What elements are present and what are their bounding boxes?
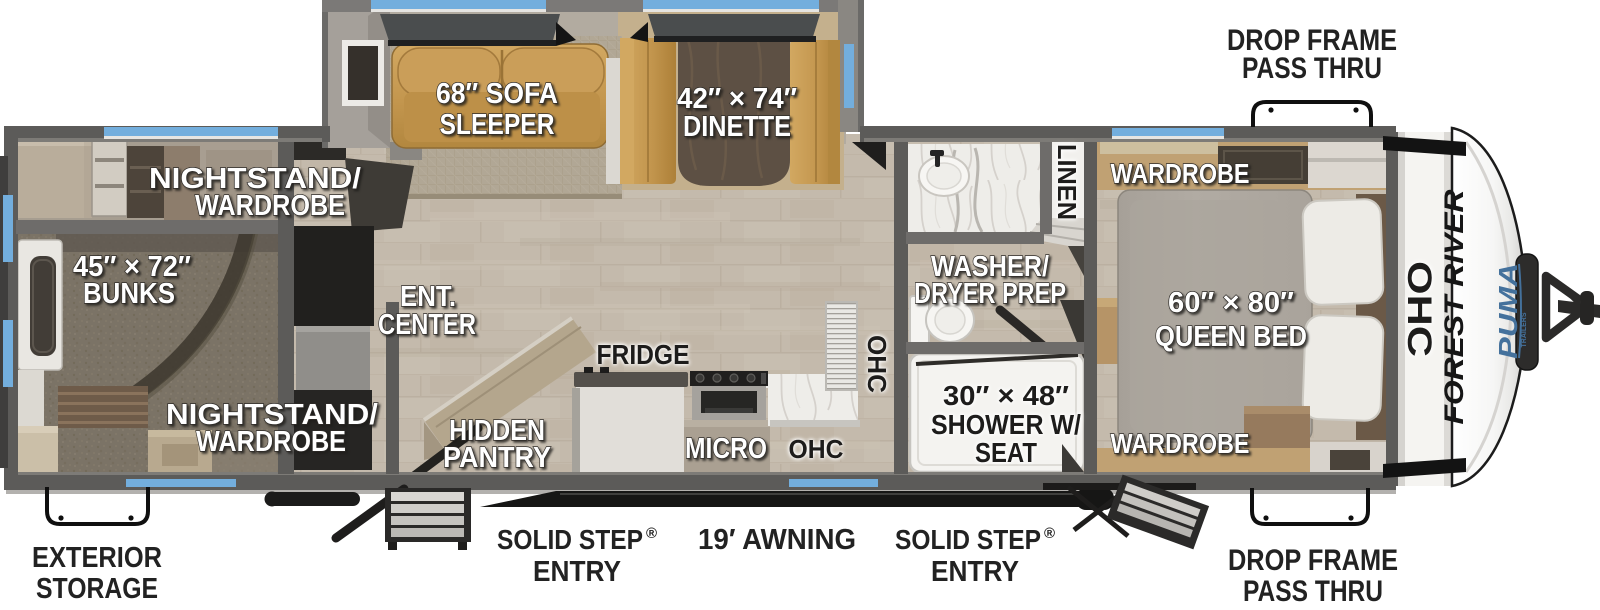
svg-text:OHC: OHC xyxy=(1400,261,1438,357)
svg-text:FOREST RIVER: FOREST RIVER xyxy=(1439,189,1469,425)
svg-text:19′ AWNING: 19′ AWNING xyxy=(698,524,856,556)
svg-text:®: ® xyxy=(646,525,657,542)
svg-text:QUEEN BED: QUEEN BED xyxy=(1155,321,1307,353)
svg-text:60″ × 80″: 60″ × 80″ xyxy=(1168,287,1294,319)
svg-text:PUMA: PUMA xyxy=(1493,263,1523,359)
svg-text:OHC: OHC xyxy=(862,335,892,393)
svg-text:TRAILERS: TRAILERS xyxy=(1521,312,1528,347)
svg-text:SLEEPER: SLEEPER xyxy=(440,109,555,141)
svg-text:LINEN: LINEN xyxy=(1052,144,1082,220)
svg-text:DRYER PREP: DRYER PREP xyxy=(914,278,1066,310)
svg-text:STORAGE: STORAGE xyxy=(36,573,158,605)
svg-text:BUNKS: BUNKS xyxy=(83,278,175,310)
svg-text:SHOWER W/: SHOWER W/ xyxy=(931,409,1081,440)
svg-text:68″ SOFA: 68″ SOFA xyxy=(436,78,558,110)
svg-text:WARDROBE: WARDROBE xyxy=(196,426,346,458)
svg-text:SOLID STEP: SOLID STEP xyxy=(497,524,643,555)
svg-text:30″ × 48″: 30″ × 48″ xyxy=(943,380,1069,411)
svg-text:ENTRY: ENTRY xyxy=(533,556,621,588)
svg-text:WARDROBE: WARDROBE xyxy=(195,190,345,222)
svg-text:DROP FRAME: DROP FRAME xyxy=(1228,544,1398,577)
svg-text:PANTRY: PANTRY xyxy=(443,442,551,474)
svg-text:DINETTE: DINETTE xyxy=(683,111,791,143)
svg-text:ENTRY: ENTRY xyxy=(931,556,1019,588)
svg-text:WARDROBE: WARDROBE xyxy=(1111,428,1250,459)
svg-text:FRIDGE: FRIDGE xyxy=(597,339,690,370)
svg-text:EXTERIOR: EXTERIOR xyxy=(32,542,162,574)
svg-text:PASS THRU: PASS THRU xyxy=(1243,575,1383,608)
svg-text:MICRO: MICRO xyxy=(685,433,767,465)
svg-text:PASS THRU: PASS THRU xyxy=(1242,52,1382,85)
svg-text:WARDROBE: WARDROBE xyxy=(1111,158,1250,189)
svg-text:®: ® xyxy=(1044,525,1055,542)
svg-text:CENTER: CENTER xyxy=(378,309,476,341)
svg-text:OHC: OHC xyxy=(789,434,844,464)
svg-text:SEAT: SEAT xyxy=(975,437,1037,468)
svg-text:SOLID STEP: SOLID STEP xyxy=(895,524,1041,555)
